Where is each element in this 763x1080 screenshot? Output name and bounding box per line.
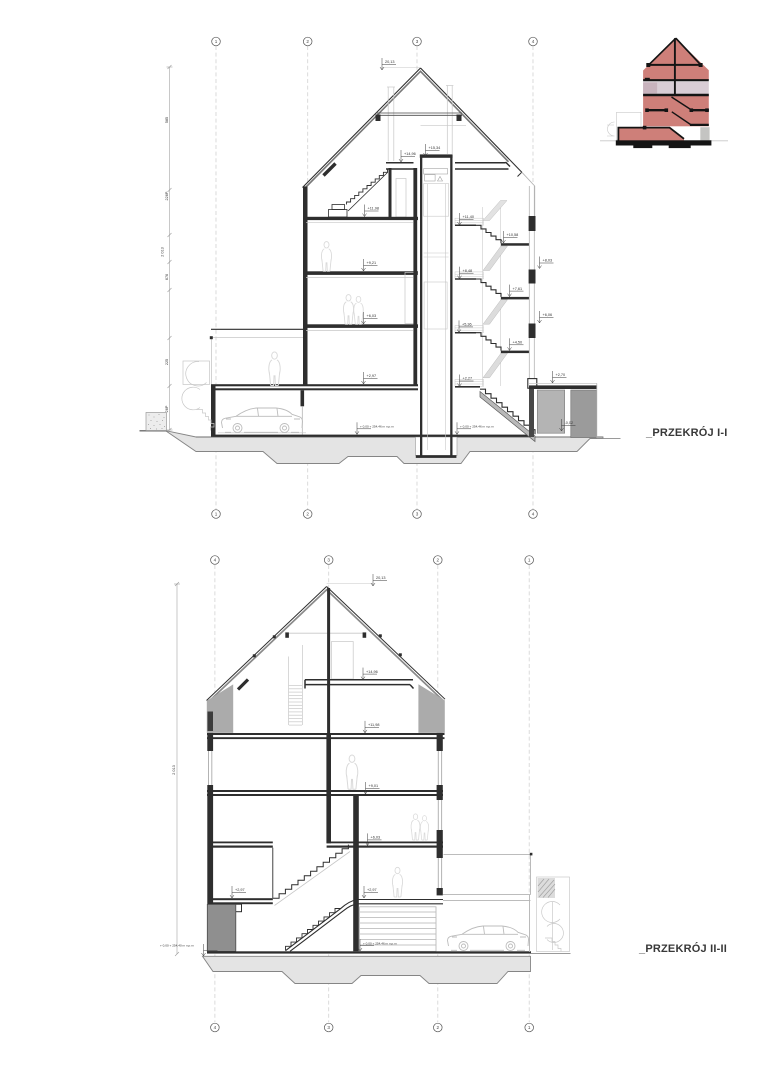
svg-text:676: 676 (165, 274, 169, 280)
svg-text:3: 3 (327, 1025, 330, 1030)
svg-text:+2,97: +2,97 (367, 374, 377, 378)
svg-text:+2,97: +2,97 (367, 888, 377, 892)
svg-text:+6,06: +6,06 (543, 313, 553, 317)
svg-text:+11,40: +11,40 (463, 215, 474, 219)
svg-text:4: 4 (532, 512, 535, 517)
svg-text:+14,96: +14,96 (404, 152, 416, 156)
svg-text:4: 4 (214, 558, 217, 563)
svg-text:-0,02: -0,02 (565, 421, 574, 425)
svg-text:585: 585 (165, 117, 169, 123)
svg-text:1: 1 (528, 1025, 531, 1030)
svg-text:_PRZEKRÓJ II-II: _PRZEKRÓJ II-II (638, 942, 727, 955)
svg-text:1: 1 (215, 39, 218, 44)
svg-text:+15,34: +15,34 (429, 146, 441, 150)
svg-text:2: 2 (437, 1025, 440, 1030)
svg-text:20,13: 20,13 (385, 60, 395, 64)
svg-text:+9,21: +9,21 (367, 261, 377, 265)
svg-text:+9,01: +9,01 (369, 784, 379, 788)
svg-text:+6,03: +6,03 (371, 836, 381, 840)
svg-text:2: 2 (306, 39, 309, 44)
svg-text:226P: 226P (165, 191, 169, 200)
svg-text:+ 0,00 + 254,40 m n.p.m: + 0,00 + 254,40 m n.p.m (160, 943, 194, 947)
svg-text:+ 0,00 + 254,46 m n.p.m: + 0,00 + 254,46 m n.p.m (363, 941, 397, 945)
svg-text:3: 3 (416, 39, 419, 44)
svg-text:+6,03: +6,03 (367, 314, 377, 318)
svg-text:4: 4 (214, 1025, 217, 1030)
svg-text:2: 2 (306, 512, 309, 517)
svg-text:+ 0,00 + 254,46 m n.p.m: + 0,00 + 254,46 m n.p.m (460, 425, 494, 429)
svg-text:_PRZEKRÓJ I-I: _PRZEKRÓJ I-I (645, 426, 727, 439)
svg-text:+5,36: +5,36 (462, 323, 472, 327)
svg-text:+11,98: +11,98 (368, 207, 379, 211)
svg-text:+7,61: +7,61 (513, 287, 523, 291)
svg-text:+10,58: +10,58 (507, 233, 519, 237)
svg-text:+2,97: +2,97 (235, 888, 245, 892)
svg-text:+ 0,00 + 254,46 m n.p.m: + 0,00 + 254,46 m n.p.m (360, 425, 394, 429)
svg-text:+14,96: +14,96 (366, 670, 378, 674)
svg-text:1: 1 (528, 558, 531, 563)
svg-text:20,13: 20,13 (376, 576, 386, 580)
svg-text:26P: 26P (165, 405, 169, 412)
svg-text:2: 2 (437, 558, 440, 563)
svg-text:3: 3 (327, 558, 330, 563)
svg-text:2 013: 2 013 (161, 247, 165, 257)
svg-text:+11,98: +11,98 (368, 723, 379, 727)
svg-text:+8,48: +8,48 (463, 269, 473, 273)
svg-text:+2,70: +2,70 (556, 373, 566, 377)
svg-text:4: 4 (532, 39, 535, 44)
svg-text:225: 225 (165, 359, 169, 365)
svg-text:2 013: 2 013 (172, 765, 176, 775)
svg-text:+4,50: +4,50 (513, 341, 523, 345)
svg-text:3: 3 (416, 512, 419, 517)
svg-text:1: 1 (215, 512, 218, 517)
svg-text:+2,27: +2,27 (463, 377, 473, 381)
svg-text:+8,03: +8,03 (543, 259, 553, 263)
